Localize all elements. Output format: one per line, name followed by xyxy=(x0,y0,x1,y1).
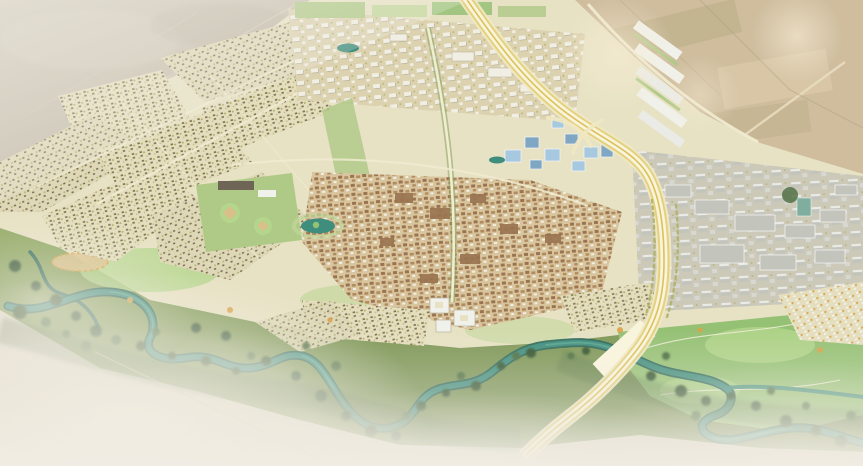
aerial-rendering xyxy=(0,0,863,466)
rendering-canvas xyxy=(0,0,863,466)
school-building-2 xyxy=(258,190,276,197)
fog-gradient xyxy=(0,330,863,466)
campus-pond xyxy=(489,157,505,164)
lake-island xyxy=(313,222,319,228)
sun-glow xyxy=(660,55,740,135)
school-campus xyxy=(196,173,302,252)
teal-glass-tower xyxy=(797,198,811,216)
school-building xyxy=(218,181,254,190)
sun-glow xyxy=(559,0,675,113)
retail-trees xyxy=(782,187,798,203)
green-field xyxy=(498,6,546,17)
